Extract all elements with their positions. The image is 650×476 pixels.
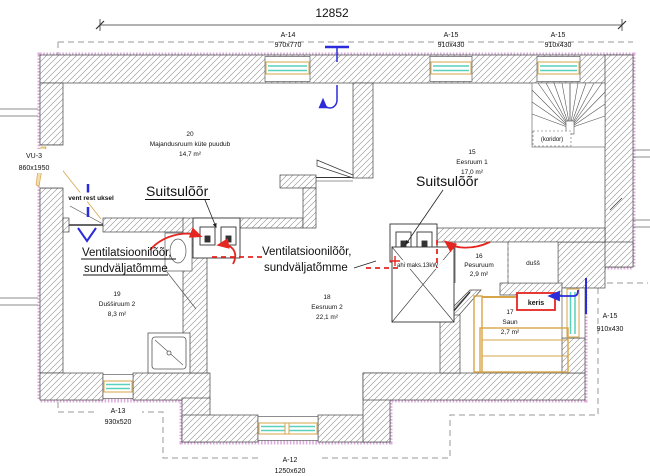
wall-ext-bottom-a [182,415,258,442]
window-a14-code: A-14 [281,32,296,39]
window-a12-size: 1250x620 [275,468,306,475]
window-a12-code: A-12 [283,457,298,464]
wall-duss-right [558,242,605,288]
room-18-number: 18 [323,294,331,301]
door-20-15 [316,160,353,181]
vent-symbol-top-hook [323,100,337,108]
window-a15-1-size: 910x430 [438,42,465,49]
room-15-number: 15 [468,149,476,156]
wall-right-lower-b [562,338,585,373]
duss-label: dušš [526,260,540,267]
window-a13-code: A-13 [111,408,126,415]
room-20-number: 20 [186,131,194,138]
room-15-name: Eesruum 1 [456,159,488,166]
window-a15-right-code: A-15 [603,313,618,320]
floor-plan-page: dušš [0,0,650,476]
floor-plan-svg: dušš [0,0,650,476]
window-a15-2-code: A-15 [551,32,566,39]
window-a13 [103,375,133,399]
vent-right-annotation-line1: Ventilatsioonilõõr, [262,246,352,258]
room-17-area: 2,7 m² [501,329,520,336]
room-19-area: 8,3 m² [108,311,127,318]
overall-dimension-value: 12852 [315,6,349,20]
room-17-name: Saun [502,319,518,326]
vent-right-annotation-line2: sundväljatõmme [264,262,348,274]
wall-20-19 [103,218,185,232]
window-a12 [258,417,318,441]
door-vu3-size: 860x1950 [19,165,50,172]
suitsuloor-right-annotation: Suitsulõõr [416,173,479,189]
window-a15-1-code: A-15 [444,32,459,39]
wall-20-step-h [280,175,316,188]
wall-bottom-left-a [40,373,103,400]
wall-left-lower [40,188,63,373]
stove-box: ahi maks.13kW [392,247,454,322]
shower-tray [148,333,190,373]
wall-room15-bottom [437,228,605,242]
vent-rest-uksel-label: vent rest uksel [68,195,114,202]
vent-left-annotation-line2: sundväljatõmme [84,263,168,275]
window-a15-top-1 [430,57,472,82]
sauna-heater-keris: keris [517,293,555,310]
wall-right-upper [605,55,633,267]
window-a14 [265,57,310,82]
room-17-number: 17 [506,309,514,316]
wall-sauna-left [440,315,460,373]
window-a15-right-size: 910x430 [597,326,624,333]
vent-left-annotation-line1: Ventilatsioonilõõr, [82,247,172,259]
suitsuloor-left-annotation: Suitsulõõr [146,183,209,199]
interior-walls [63,83,605,373]
wall-left-upper [40,83,63,145]
room-19-number: 19 [113,291,121,298]
wall-20-step-v [303,188,316,228]
door-vu3-code: VU-3 [26,153,42,160]
wall-20-19-stub [63,218,69,232]
window-a13-size: 930x520 [105,419,132,426]
wall-20-15 [353,83,373,178]
room-16-number: 16 [475,253,483,260]
wall-bottom-left-b [133,373,210,400]
flue-box-left [193,218,240,258]
room-18-area: 22,1 m² [316,314,339,321]
room-16-name: Pesuruum [464,262,494,269]
leader-vent-right [354,261,376,268]
koridor-label: (koridor) [541,137,563,143]
overall-dimension-line [96,19,626,31]
vent-arrow-door [78,228,96,241]
window-a14-size: 970x770 [275,42,302,49]
door-20-15-leaf [317,160,353,178]
stove-label: ahi maks.13kW [397,263,438,269]
duss-recess: dušš [508,242,558,283]
room-19-name: Dušširuum 2 [99,301,136,308]
room-18-name: Eesruum 2 [311,304,343,311]
room-16-area: 2,9 m² [470,271,489,278]
room-20-name: Majandusruum küte puudub [150,141,231,148]
room-20-area: 14,7 m² [179,151,202,158]
window-a15-2-size: 910x430 [545,42,572,49]
keris-label: keris [528,300,544,307]
window-a15-top-2 [537,57,580,82]
wall-bottom-right [363,373,585,400]
wall-20-18 [240,218,303,228]
